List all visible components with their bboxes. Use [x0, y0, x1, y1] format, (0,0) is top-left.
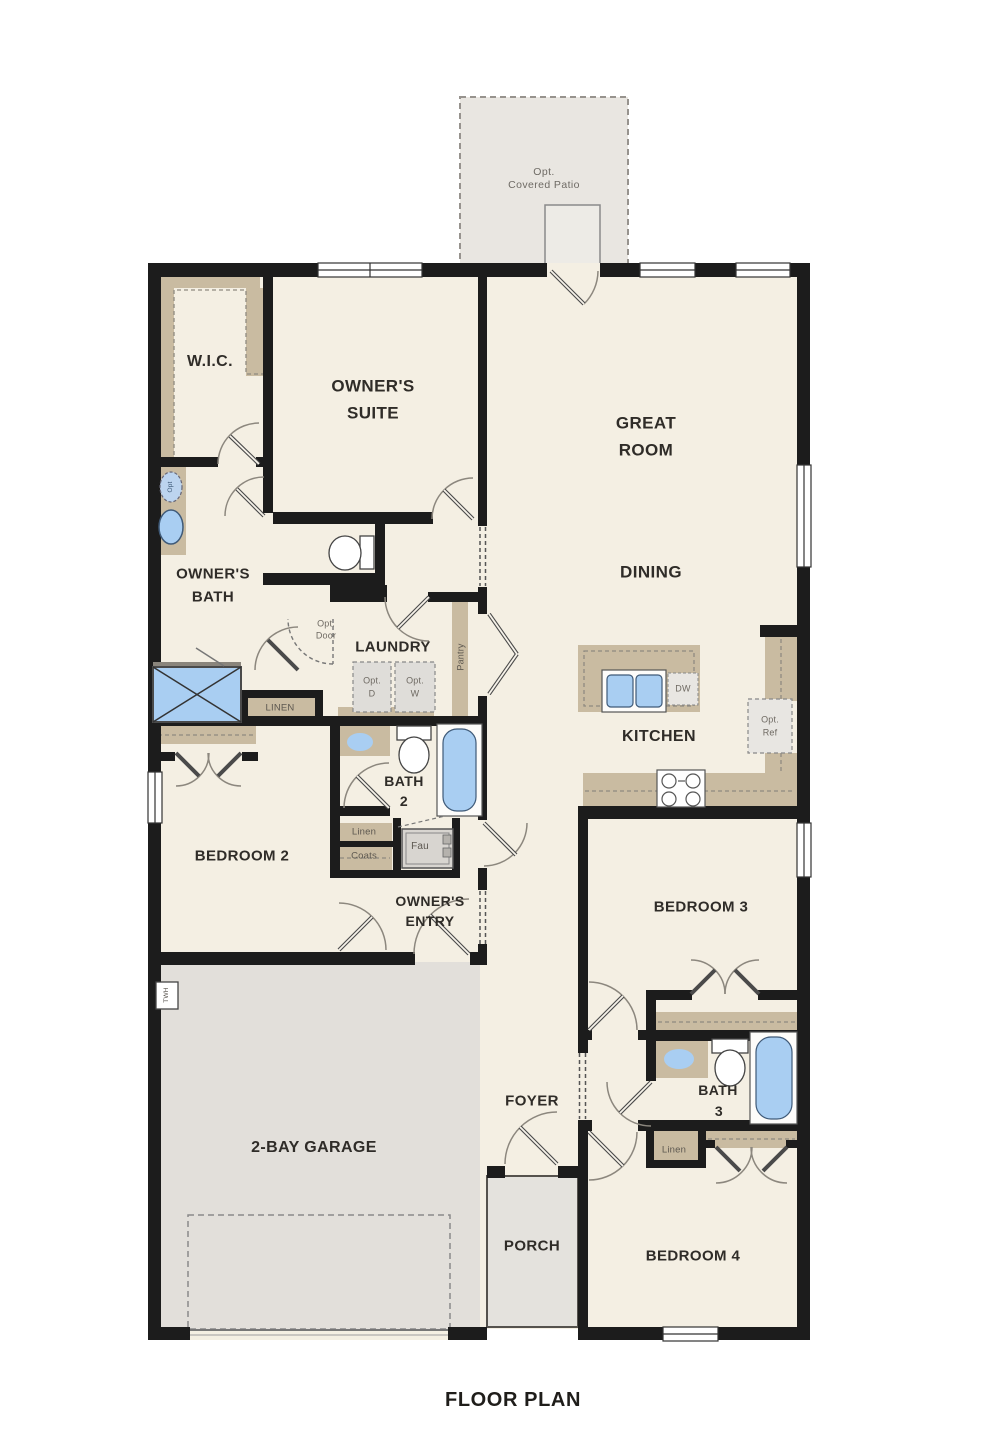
- opt-ref-label-line2: Ref: [763, 729, 778, 738]
- room-label-bath3-line2: 3: [715, 1104, 723, 1118]
- room-label-owners-suite-line1: OWNER'S: [331, 378, 414, 395]
- room-label-bath2-line1: BATH: [384, 774, 423, 788]
- room-label-owners-bath-line1: OWNER'S: [176, 567, 250, 582]
- opt-sink-label: Opt: [168, 481, 175, 492]
- room-label-bedroom2: BEDROOM 2: [195, 849, 289, 864]
- room-label-bedroom4: BEDROOM 4: [646, 1249, 740, 1264]
- room-label-laundry: LAUNDRY: [355, 640, 431, 655]
- room-label-owners-entry-line1: OWNER'S: [395, 894, 464, 908]
- patio-label-line2: Covered Patio: [508, 180, 580, 191]
- coats-label: Coats: [351, 851, 377, 861]
- room-label-bath2-line2: 2: [400, 794, 408, 808]
- linen3-label: Linen: [662, 1145, 686, 1155]
- toilet-icon-owners-bath: [329, 536, 374, 570]
- linen-hall-label: Linen: [352, 827, 376, 837]
- bathtub-icon-bath2: [437, 724, 482, 816]
- room-label-wic: W.I.C.: [187, 354, 233, 370]
- sink-icon-bath2: [347, 733, 373, 751]
- opt-ref-label-line1: Opt.: [761, 716, 779, 725]
- stove-icon: [657, 770, 705, 807]
- page-title: FLOOR PLAN: [445, 1390, 581, 1410]
- room-label-owners-bath-line2: BATH: [192, 590, 234, 605]
- room-label-bath3-line1: BATH: [698, 1083, 737, 1097]
- bathtub-icon-bath3: [750, 1032, 797, 1124]
- room-label-garage: 2-BAY GARAGE: [251, 1140, 377, 1156]
- linen-upper-label: LINEN: [266, 703, 295, 713]
- opt-washer-box: [395, 662, 435, 712]
- room-label-owners-suite-line2: SUITE: [347, 405, 399, 422]
- room-label-dining: DINING: [620, 564, 682, 581]
- opt-door-label-line1: Opt.: [317, 620, 335, 629]
- sink-icon-owners-bath: [159, 510, 183, 544]
- patio-label-line1: Opt.: [533, 167, 554, 178]
- room-label-great-room-line1: GREAT: [616, 415, 676, 432]
- bedroom3-closet-shelf: [656, 1012, 797, 1032]
- floorplan-drawing: [0, 0, 1000, 1447]
- dishwasher-label: DW: [675, 685, 690, 694]
- opt-door-label-line2: Door: [316, 632, 336, 641]
- room-label-kitchen: KITCHEN: [622, 729, 696, 745]
- toilet-icon-bath3: [712, 1039, 748, 1086]
- opt-dryer-label-line2: D: [369, 690, 376, 699]
- bedroom2-closet-shelf: [156, 726, 256, 744]
- opt-washer-label-line2: W: [411, 690, 420, 699]
- pantry-label: Pantry: [457, 643, 466, 670]
- room-label-bedroom3: BEDROOM 3: [654, 900, 748, 915]
- room-label-foyer: FOYER: [505, 1094, 559, 1109]
- sink-icon-bath3: [664, 1049, 694, 1069]
- furnace-label: Fau: [411, 842, 429, 852]
- room-label-great-room-line2: ROOM: [619, 442, 673, 459]
- opt-ref-box: [748, 699, 792, 753]
- opt-dryer-label-line1: Opt.: [363, 677, 381, 686]
- opt-washer-label-line1: Opt.: [406, 677, 424, 686]
- water-heater-label: TWH: [164, 987, 171, 1002]
- opt-dryer-box: [353, 662, 391, 712]
- room-label-owners-entry-line2: ENTRY: [406, 914, 455, 928]
- floor-plan-page: Opt. Covered Patio W.I.C. OWNER'S SUITE …: [0, 0, 1000, 1447]
- kitchen-sink-icon: [602, 670, 666, 712]
- toilet-icon-bath2: [397, 726, 431, 773]
- room-label-porch: PORCH: [504, 1239, 560, 1254]
